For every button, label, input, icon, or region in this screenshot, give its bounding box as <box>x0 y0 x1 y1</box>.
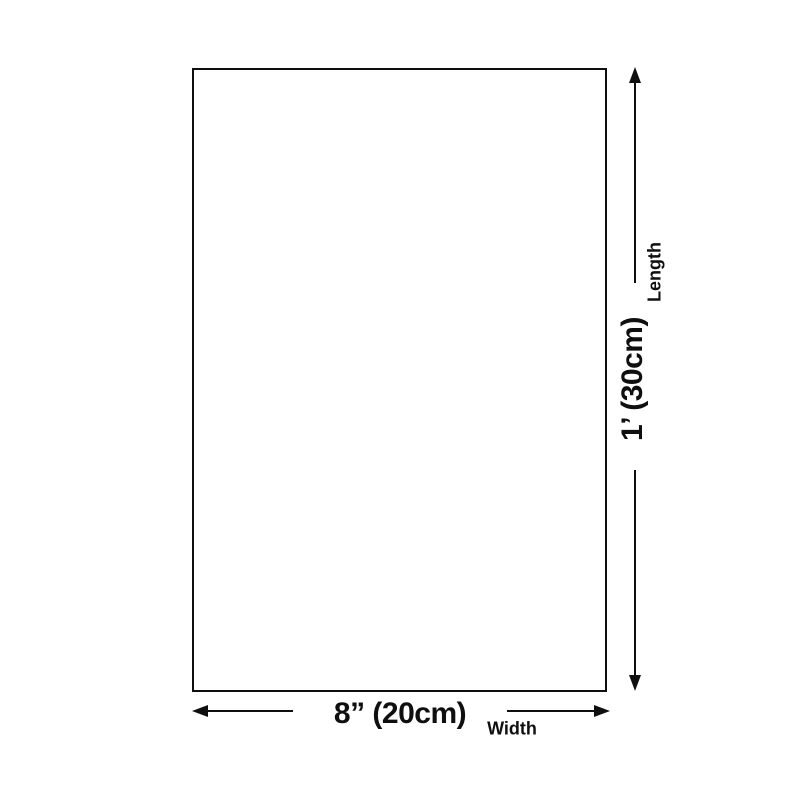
length-dimension-line-upper <box>634 81 636 283</box>
width-dimension-line-left <box>206 710 293 712</box>
product-outline <box>192 68 607 692</box>
length-value: 1’ (30cm) <box>616 317 650 441</box>
length-dimension-line-lower <box>634 470 636 676</box>
width-axis-label: Width <box>487 719 537 740</box>
length-axis-label: Length <box>645 242 666 302</box>
arrow-down-icon <box>629 675 641 691</box>
width-dimension-line-right <box>507 710 595 712</box>
arrow-right-icon <box>594 705 610 717</box>
width-value: 8” (20cm) <box>334 697 466 731</box>
dimension-diagram: Length 1’ (30cm) 8” (20cm) Width <box>0 0 800 800</box>
